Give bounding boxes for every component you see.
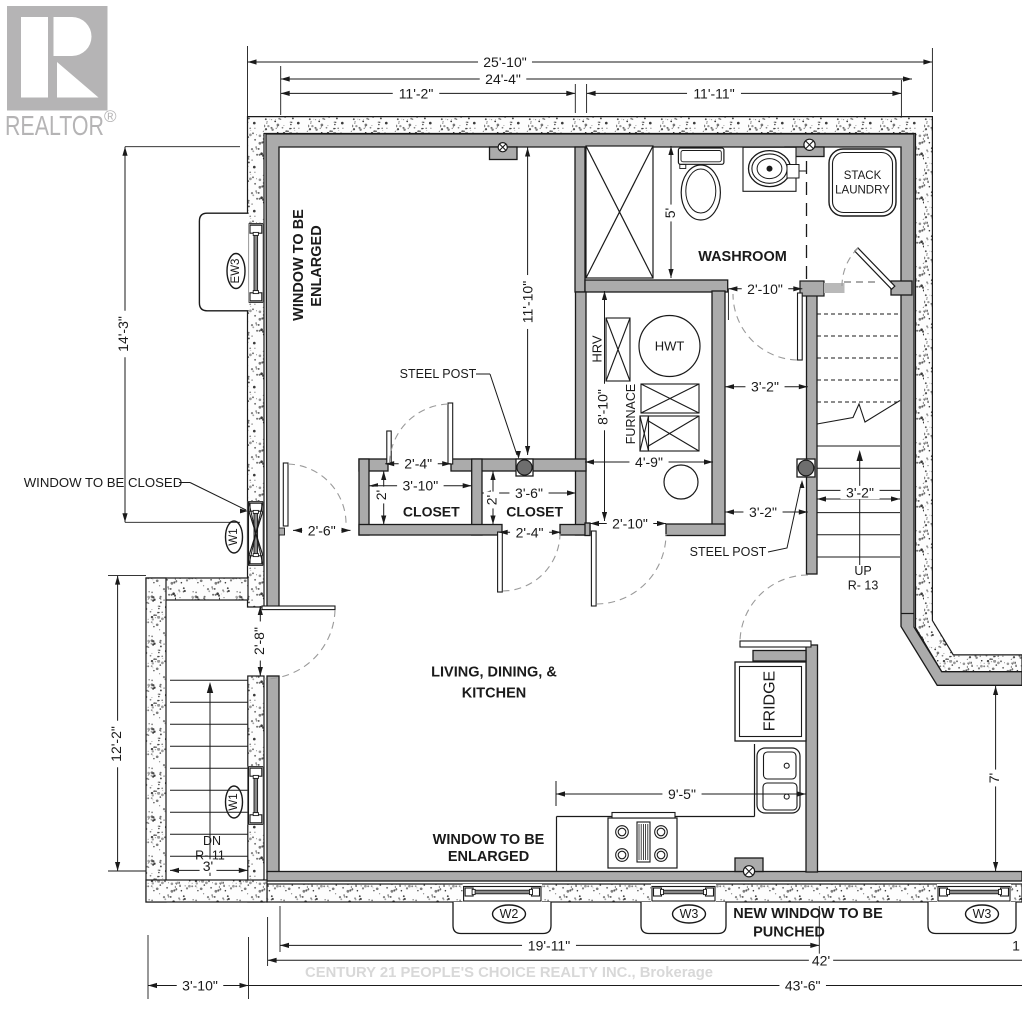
svg-text:3'-2": 3'-2"	[846, 485, 874, 501]
svg-text:CLOSET: CLOSET	[506, 503, 563, 519]
svg-text:25'-10": 25'-10"	[483, 54, 526, 70]
svg-text:WINDOW TO BE: WINDOW TO BE	[291, 209, 307, 321]
svg-text:8'-10": 8'-10"	[595, 389, 611, 425]
svg-text:KITCHEN: KITCHEN	[462, 686, 526, 702]
svg-text:DN: DN	[203, 834, 221, 848]
svg-text:2'-4": 2'-4"	[516, 524, 544, 540]
svg-text:FURNACE: FURNACE	[624, 384, 638, 444]
svg-text:11'-10": 11'-10"	[520, 281, 536, 323]
svg-text:5': 5'	[662, 208, 678, 218]
svg-text:43'-6": 43'-6"	[785, 978, 821, 994]
svg-text:2'-6": 2'-6"	[308, 522, 336, 538]
svg-text:W3: W3	[680, 907, 699, 921]
svg-text:42': 42'	[812, 952, 830, 968]
svg-text:NEW WINDOW TO BE: NEW WINDOW TO BE	[733, 906, 883, 922]
svg-text:2': 2'	[484, 495, 500, 505]
svg-text:W1: W1	[228, 528, 240, 545]
svg-text:®: ®	[104, 107, 117, 126]
svg-text:EW3: EW3	[230, 259, 242, 284]
svg-text:R- 13: R- 13	[848, 579, 879, 593]
svg-text:STEEL POST: STEEL POST	[690, 545, 767, 559]
svg-text:STEEL POST: STEEL POST	[400, 367, 477, 381]
svg-text:9'-5": 9'-5"	[668, 786, 696, 802]
svg-text:2'-10": 2'-10"	[747, 281, 783, 297]
svg-text:24'-4": 24'-4"	[485, 71, 521, 87]
svg-text:WINDOW TO BE: WINDOW TO BE	[433, 832, 545, 848]
svg-text:12'-2": 12'-2"	[108, 726, 124, 762]
svg-text:3'-10": 3'-10"	[403, 478, 439, 494]
svg-text:FRIDGE: FRIDGE	[762, 671, 779, 731]
svg-text:W2: W2	[500, 907, 519, 921]
svg-text:11'-11": 11'-11"	[693, 85, 734, 101]
svg-text:CLOSET: CLOSET	[403, 503, 460, 519]
svg-text:W3: W3	[973, 907, 992, 921]
svg-text:ENLARGED: ENLARGED	[309, 225, 325, 306]
svg-text:UP: UP	[854, 564, 871, 578]
svg-text:2'-4": 2'-4"	[404, 456, 432, 472]
svg-text:11'-2": 11'-2"	[399, 85, 434, 101]
svg-text:LIVING, DINING, &: LIVING, DINING, &	[431, 665, 557, 681]
svg-text:2'-8": 2'-8"	[251, 627, 267, 655]
svg-text:WASHROOM: WASHROOM	[698, 249, 787, 265]
svg-text:PUNCHED: PUNCHED	[753, 925, 825, 941]
svg-text:CENTURY 21 PEOPLE'S CHOICE REA: CENTURY 21 PEOPLE'S CHOICE REALTY INC., …	[305, 965, 713, 981]
svg-text:7': 7'	[986, 773, 1002, 783]
svg-text:HRV: HRV	[590, 335, 605, 363]
svg-text:2'-10": 2'-10"	[612, 516, 648, 532]
svg-text:19'-11": 19'-11"	[528, 937, 570, 953]
svg-text:4'-9": 4'-9"	[635, 454, 663, 470]
svg-text:3'-6": 3'-6"	[515, 485, 543, 501]
svg-text:3'-2": 3'-2"	[751, 379, 779, 395]
svg-text:3'-2": 3'-2"	[749, 504, 777, 520]
svg-text:14'-3": 14'-3"	[115, 316, 131, 352]
svg-text:2': 2'	[373, 490, 389, 500]
svg-text:STACK: STACK	[844, 170, 882, 182]
svg-text:LAUNDRY: LAUNDRY	[835, 185, 890, 197]
svg-text:3': 3'	[203, 858, 213, 874]
svg-text:HWT: HWT	[655, 339, 685, 354]
svg-text:3'-10": 3'-10"	[182, 978, 218, 994]
svg-text:REALTOR: REALTOR	[5, 110, 104, 141]
svg-text:WINDOW TO BE CLOSED: WINDOW TO BE CLOSED	[24, 475, 183, 490]
svg-text:1: 1	[1012, 937, 1020, 953]
svg-text:W1: W1	[228, 793, 240, 810]
svg-text:ENLARGED: ENLARGED	[448, 849, 529, 865]
